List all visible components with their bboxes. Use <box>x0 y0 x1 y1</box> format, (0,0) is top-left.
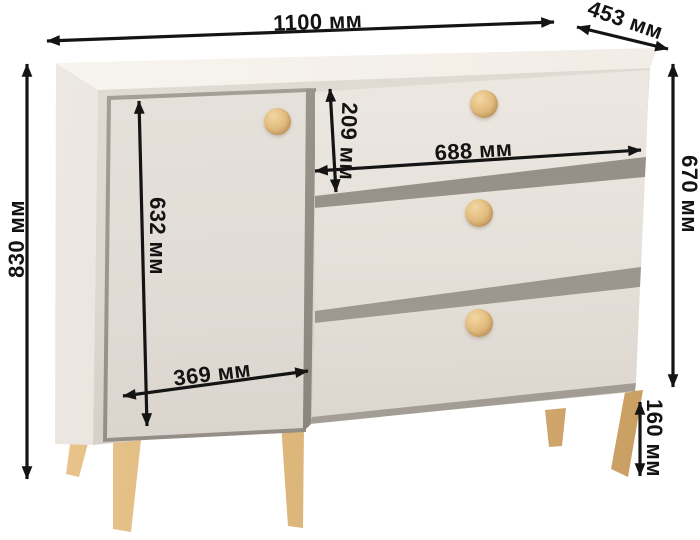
depth-dimension-label: 453 мм <box>585 0 667 44</box>
depth-dimension-arrow <box>577 27 668 49</box>
body-height-dimension-label: 670 мм <box>677 155 700 233</box>
drawer-2-knob <box>465 199 493 227</box>
drawer-3-knob <box>465 309 493 337</box>
drawer-1-knob <box>470 90 498 118</box>
width-dimension-arrow <box>47 22 554 41</box>
furniture-dimension-diagram: 1100 мм 453 мм 830 мм 670 мм 632 мм 369 … <box>0 0 700 540</box>
door-knob <box>264 108 291 135</box>
total-height-dimension-label: 830 мм <box>4 200 29 278</box>
leg-height-dimension-label: 160 мм <box>642 399 667 477</box>
width-dimension-label: 1100 мм <box>273 7 363 36</box>
